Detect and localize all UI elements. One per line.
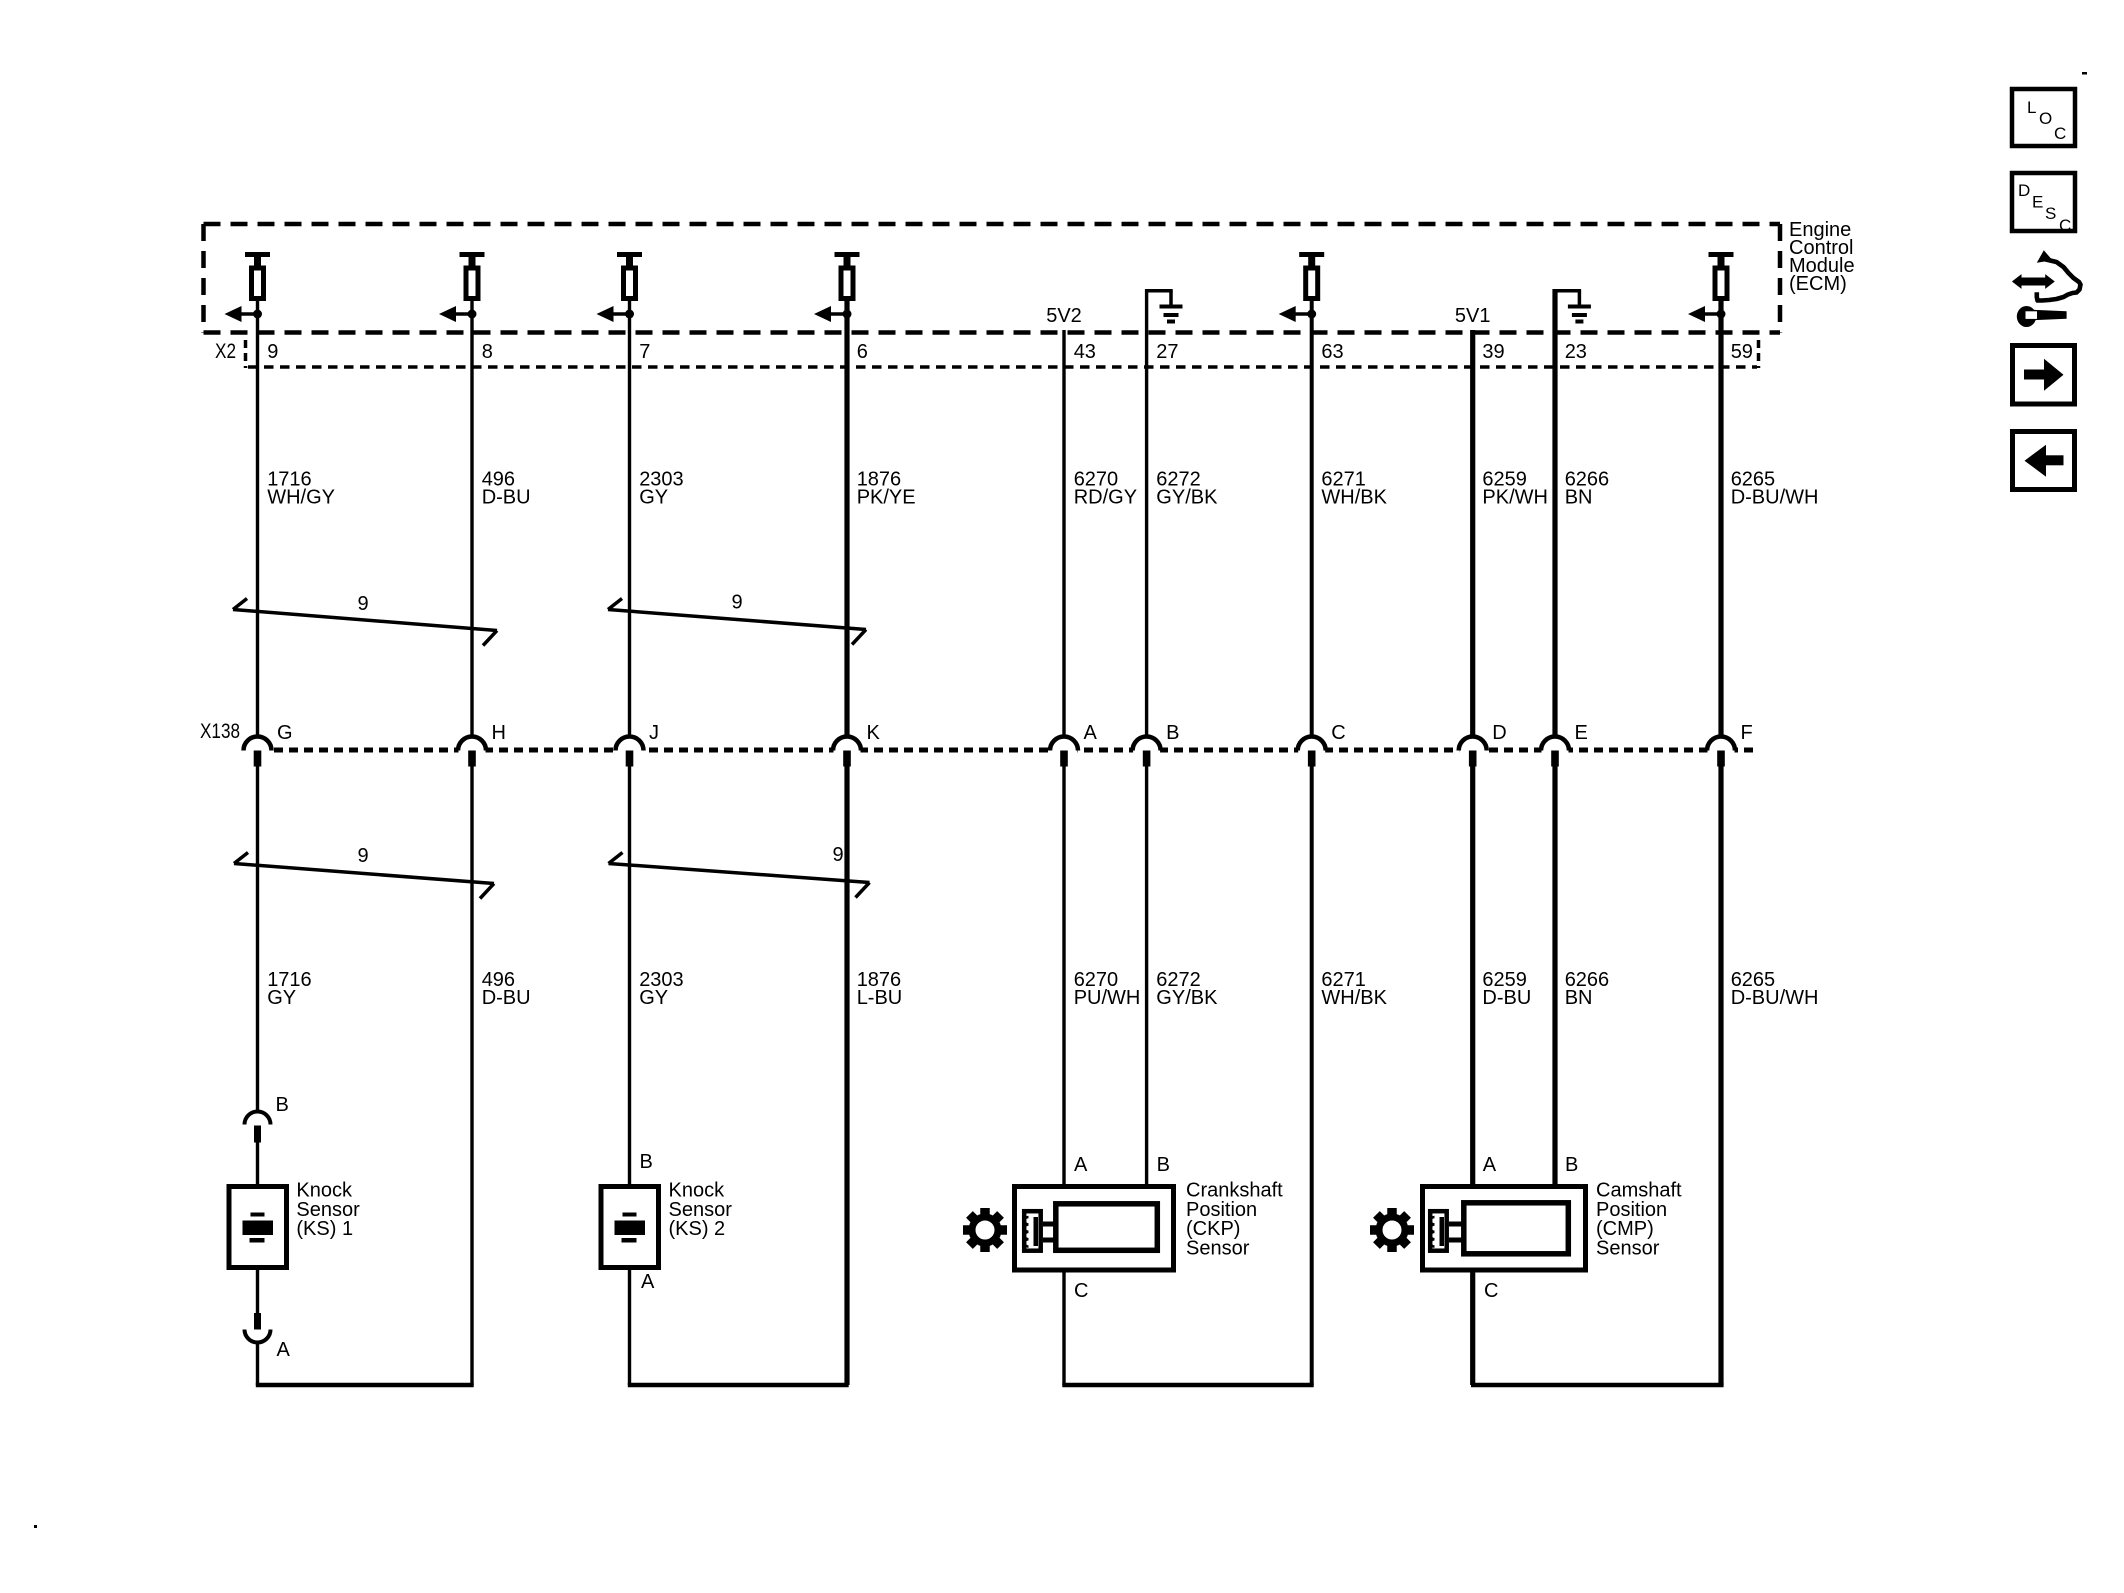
svg-text:A: A: [641, 1271, 655, 1293]
svg-text:C: C: [1331, 722, 1345, 744]
svg-text:9: 9: [357, 845, 368, 867]
svg-text:A: A: [277, 1339, 291, 1361]
svg-text:43: 43: [1074, 341, 1096, 363]
svg-text:23: 23: [1565, 341, 1587, 363]
svg-text:GY/BK: GY/BK: [1156, 487, 1218, 509]
svg-text:D-BU/WH: D-BU/WH: [1731, 987, 1819, 1009]
svg-text:Sensor: Sensor: [1596, 1237, 1660, 1259]
svg-text:X2: X2: [215, 340, 236, 363]
svg-text:9: 9: [267, 341, 278, 363]
svg-text:9: 9: [357, 593, 368, 615]
svg-text:5V2: 5V2: [1046, 305, 1082, 327]
svg-text:(KS) 1: (KS) 1: [296, 1218, 353, 1240]
svg-text:L: L: [2027, 98, 2036, 117]
svg-text:(ECM): (ECM): [1789, 273, 1847, 295]
svg-text:H: H: [492, 722, 506, 744]
svg-text:BN: BN: [1565, 987, 1593, 1009]
svg-text:PU/WH: PU/WH: [1074, 987, 1141, 1009]
svg-text:X138: X138: [200, 720, 240, 743]
svg-text:PK/YE: PK/YE: [857, 487, 916, 509]
svg-text:D-BU: D-BU: [1482, 987, 1531, 1009]
svg-text:S: S: [2045, 204, 2056, 223]
svg-text:D-BU/WH: D-BU/WH: [1731, 487, 1819, 509]
svg-text:J: J: [649, 722, 659, 744]
svg-text:5V1: 5V1: [1455, 305, 1491, 327]
svg-text:A: A: [1084, 722, 1098, 744]
svg-text:27: 27: [1156, 341, 1178, 363]
svg-text:D-BU: D-BU: [482, 987, 531, 1009]
svg-text:(KS) 2: (KS) 2: [669, 1218, 726, 1240]
svg-text:E: E: [1575, 722, 1588, 744]
svg-text:GY: GY: [639, 487, 668, 509]
svg-text:BN: BN: [1565, 487, 1593, 509]
svg-text:WH/BK: WH/BK: [1321, 487, 1387, 509]
svg-text:B: B: [1157, 1154, 1170, 1176]
svg-text:PK/WH: PK/WH: [1482, 487, 1548, 509]
svg-text:A: A: [1074, 1154, 1088, 1176]
svg-text:WH/BK: WH/BK: [1321, 987, 1387, 1009]
svg-text:C: C: [1484, 1280, 1498, 1302]
svg-text:6: 6: [857, 341, 868, 363]
svg-text:B: B: [276, 1094, 289, 1116]
svg-text:E: E: [2032, 193, 2043, 212]
svg-text:39: 39: [1482, 341, 1504, 363]
svg-text:F: F: [1741, 722, 1753, 744]
svg-text:C: C: [1074, 1280, 1088, 1302]
svg-text:7: 7: [639, 341, 650, 363]
svg-text:K: K: [867, 722, 881, 744]
svg-text:RD/GY: RD/GY: [1074, 487, 1137, 509]
svg-text:59: 59: [1731, 341, 1753, 363]
svg-text:GY: GY: [639, 987, 668, 1009]
svg-text:C: C: [2054, 124, 2066, 143]
svg-text:B: B: [1166, 722, 1179, 744]
svg-text:A: A: [1483, 1154, 1497, 1176]
svg-text:8: 8: [482, 341, 493, 363]
svg-text:D: D: [2018, 181, 2030, 200]
svg-text:D: D: [1492, 722, 1506, 744]
svg-text:O: O: [2039, 109, 2052, 128]
svg-text:L-BU: L-BU: [857, 987, 903, 1009]
svg-text:9: 9: [832, 844, 843, 866]
svg-text:B: B: [640, 1151, 653, 1173]
svg-text:GY/BK: GY/BK: [1156, 987, 1218, 1009]
svg-text:D-BU: D-BU: [482, 487, 531, 509]
svg-text:9: 9: [731, 592, 742, 614]
svg-text:GY: GY: [267, 987, 296, 1009]
svg-text:B: B: [1565, 1154, 1578, 1176]
svg-text:C: C: [2059, 216, 2071, 235]
svg-text:63: 63: [1321, 341, 1343, 363]
svg-text:WH/GY: WH/GY: [267, 487, 335, 509]
svg-text:G: G: [277, 722, 293, 744]
svg-text:Sensor: Sensor: [1186, 1237, 1250, 1259]
